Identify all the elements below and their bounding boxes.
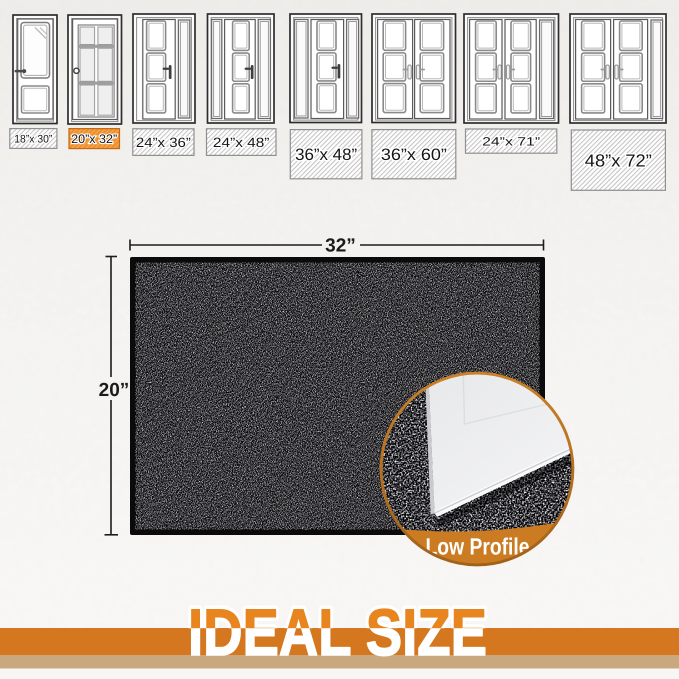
svg-text:Low Profile: Low Profile [426,534,530,560]
svg-text:48”x 72”: 48”x 72” [585,150,652,170]
svg-text:24”x 71”: 24”x 71” [482,134,540,148]
svg-text:32”: 32” [325,236,356,257]
svg-text:24”x 48”: 24”x 48” [213,135,270,150]
svg-text:36”x 60”: 36”x 60” [381,146,447,164]
svg-text:36”x 48”: 36”x 48” [295,146,357,164]
svg-text:20”: 20” [99,380,130,401]
svg-text:18”x 30”: 18”x 30” [14,133,52,145]
svg-text:20”x 32”: 20”x 32” [71,132,117,146]
svg-text:24”x 36”: 24”x 36” [136,135,191,150]
